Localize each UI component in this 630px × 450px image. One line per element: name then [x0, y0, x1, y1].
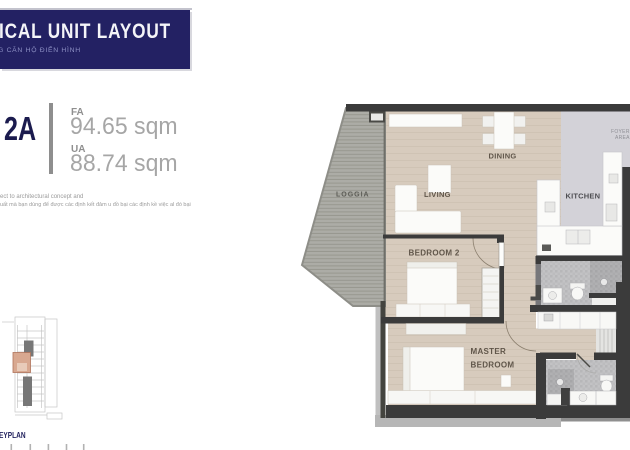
svg-text:BEDROOM 2: BEDROOM 2	[409, 249, 460, 258]
svg-text:KITCHEN: KITCHEN	[566, 192, 601, 201]
svg-text:MASTER: MASTER	[471, 347, 507, 356]
svg-text:DINING: DINING	[489, 152, 517, 161]
svg-text:LIVING: LIVING	[424, 190, 451, 199]
svg-text:AREA: AREA	[615, 135, 630, 141]
svg-text:LOGGIA: LOGGIA	[336, 192, 370, 199]
svg-text:EYPLAN: EYPLAN	[0, 430, 26, 440]
svg-text:BEDROOM: BEDROOM	[471, 361, 515, 370]
